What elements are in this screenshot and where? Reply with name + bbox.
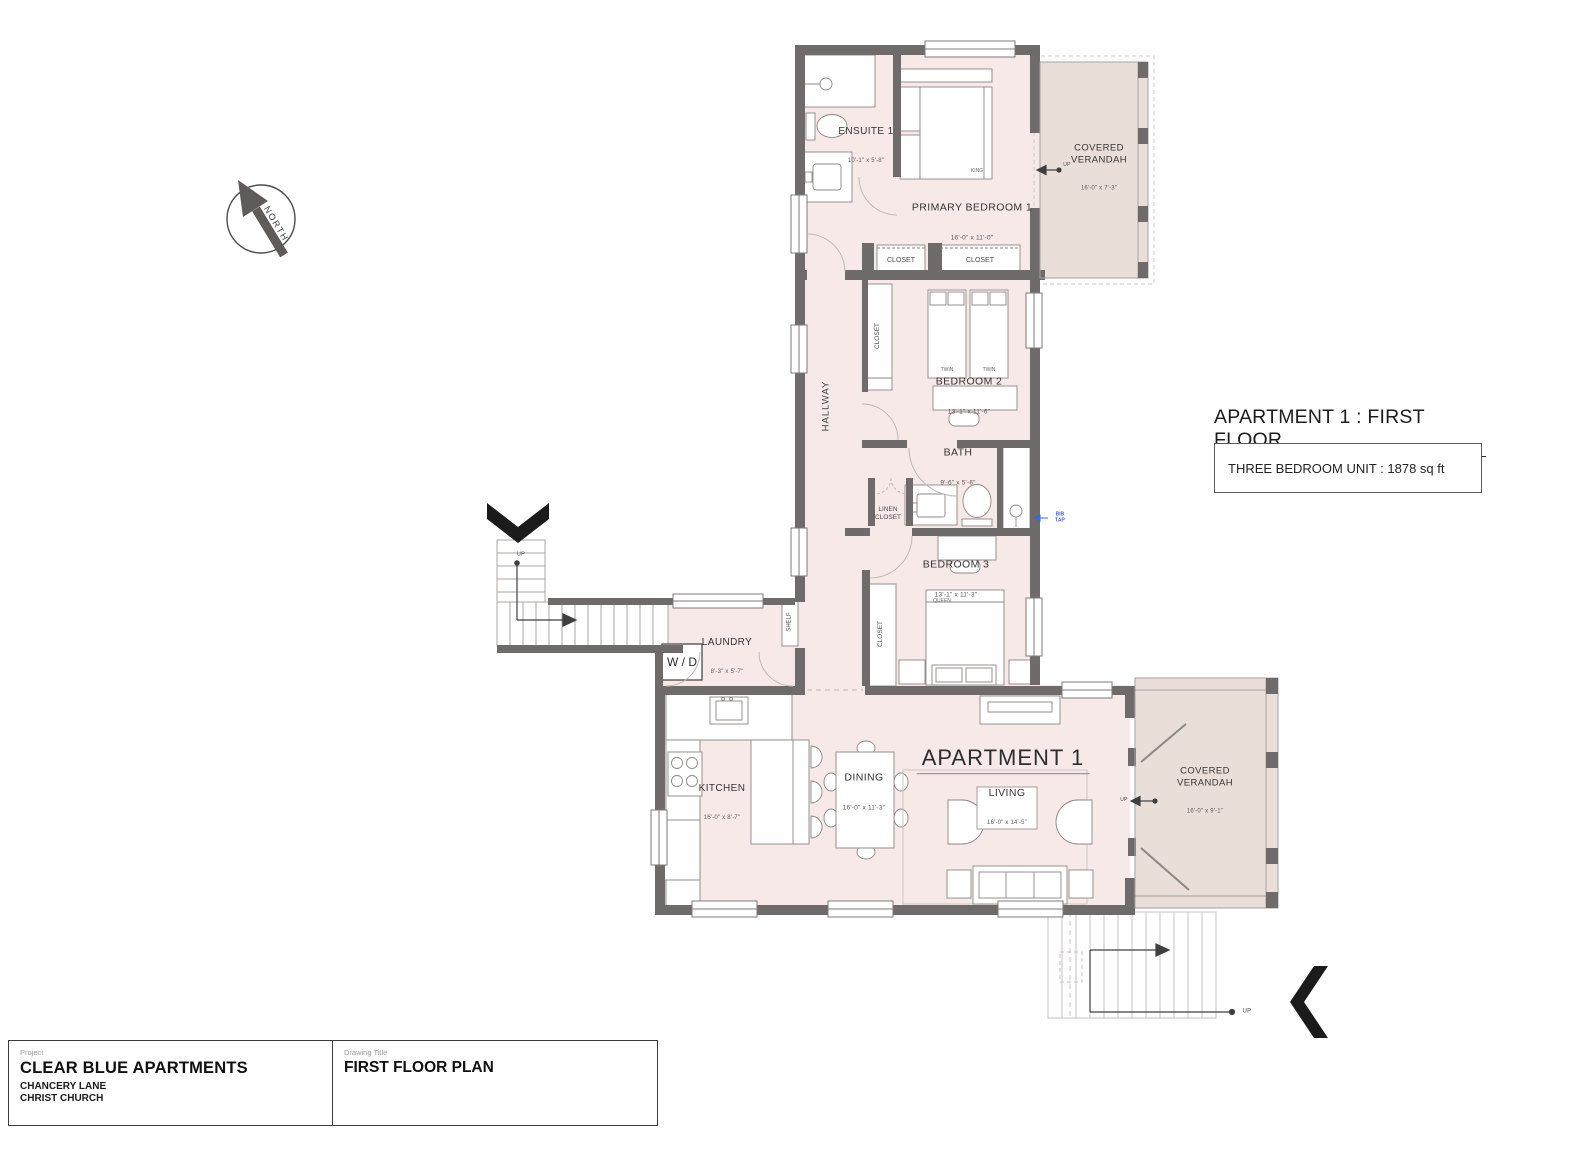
project-address-line1: CHANCERY LANE bbox=[20, 1081, 321, 1092]
project-address-line2: CHRIST CHURCH bbox=[20, 1093, 321, 1104]
drawing-title-label: Drawing Title bbox=[344, 1048, 494, 1057]
room-dims: 9'-6" x 5'-6" bbox=[940, 479, 975, 487]
room-label-linen-closet: LINEN CLOSET bbox=[875, 506, 901, 522]
washer-dryer-label: W / D bbox=[667, 655, 697, 669]
room-dims: 16'-0" x 14'-5" bbox=[987, 820, 1027, 827]
room-dims: 16'-0" x 8'-7" bbox=[699, 816, 746, 823]
room-name: PRIMARY BEDROOM 1 bbox=[912, 202, 1032, 215]
room-label-dining: DINING 16'-0" x 11'-3" bbox=[843, 753, 886, 832]
room-label-verandah-top: COVERED VERANDAH 16'-0" x 7'-3" bbox=[1071, 124, 1127, 213]
stair-bottom-right bbox=[1048, 912, 1216, 1018]
bed-size-label-king: KING bbox=[971, 168, 983, 174]
floor-plan-drawing bbox=[0, 0, 1594, 1164]
room-label-kitchen: KITCHEN 16'-0" x 8'-7" bbox=[699, 764, 746, 842]
kitchen-island bbox=[751, 740, 809, 844]
bed-size-label-twin-2: TWIN bbox=[983, 367, 996, 373]
bed-size-label-queen: QUEEN bbox=[933, 598, 951, 604]
room-name: COVERED VERANDAH bbox=[1177, 766, 1233, 789]
room-label-ensuite: ENSUITE 1 10'-1" x 5'-8" bbox=[838, 107, 893, 185]
chevron-down-icon bbox=[487, 503, 549, 543]
room-name: LIVING bbox=[987, 787, 1027, 800]
bar-stools bbox=[811, 746, 822, 838]
room-dims: 10'-1" x 5'-8" bbox=[838, 159, 893, 166]
sink-icon bbox=[710, 697, 748, 724]
title-block-project-cell: Project CLEAR BLUE APARTMENTS CHANCERY L… bbox=[9, 1041, 333, 1125]
drawing-title: FIRST FLOOR PLAN bbox=[344, 1059, 494, 1077]
room-dims: 16'-0" x 11'-0" bbox=[912, 234, 1032, 242]
bath-shower-icon bbox=[1003, 446, 1030, 530]
room-label-closet-2: CLOSET bbox=[966, 257, 994, 265]
room-dims: 16'-0" x 7'-3" bbox=[1071, 186, 1127, 193]
shower-icon bbox=[800, 55, 875, 107]
up-label-stair-bottom: UP bbox=[1243, 1008, 1252, 1015]
room-dims: 16'-0" x 11'-3" bbox=[843, 804, 886, 812]
stove-icon bbox=[668, 752, 702, 796]
title-block-drawing-cell: Drawing Title FIRST FLOOR PLAN bbox=[333, 1041, 505, 1125]
room-label-living: LIVING 16'-0" x 14'-5" bbox=[987, 768, 1027, 846]
room-name: BEDROOM 2 bbox=[936, 376, 1003, 389]
north-compass-icon bbox=[227, 180, 295, 255]
room-label-shelf: SHELF bbox=[786, 612, 793, 631]
bib-tap-label: BIB TAP bbox=[1055, 513, 1065, 524]
room-label-verandah-bottom: COVERED VERANDAH 16'-0" x 9'-1" bbox=[1177, 747, 1233, 836]
room-label-bath: BATH 9'-6" x 5'-6" bbox=[940, 428, 975, 507]
room-label-bedroom3: BEDROOM 3 13'-1" x 11'-3" bbox=[923, 540, 990, 619]
bed-size-label-twin-1: TWIN bbox=[941, 367, 954, 373]
room-label-laundry: LAUNDRY 8'-3" x 5'-7" bbox=[702, 618, 752, 696]
apartment-title-label: APARTMENT 1 bbox=[917, 726, 1090, 772]
room-label-primary-bedroom: PRIMARY BEDROOM 1 16'-0" x 11'-0" bbox=[912, 183, 1032, 262]
room-name: ENSUITE 1 bbox=[838, 126, 893, 138]
room-label-closet-bedroom2: CLOSET bbox=[874, 323, 882, 349]
room-label-hallway: HALLWAY bbox=[820, 381, 831, 432]
up-label-verandah-bottom: UP bbox=[1120, 797, 1128, 803]
unit-info-text: THREE BEDROOM UNIT : 1878 sq ft bbox=[1228, 461, 1444, 476]
room-name: DINING bbox=[843, 772, 886, 785]
room-dims: 13'-1" x 11'-6" bbox=[936, 408, 1003, 416]
room-name: LAUNDRY bbox=[702, 637, 752, 649]
up-label-stair-left: UP bbox=[517, 552, 525, 559]
room-dims: 8'-3" x 5'-7" bbox=[702, 670, 752, 677]
floor-plan-page: ENSUITE 1 10'-1" x 5'-8" PRIMARY BEDROOM… bbox=[0, 0, 1594, 1164]
room-label-closet-bedroom3: CLOSET bbox=[877, 621, 885, 647]
tv-console bbox=[980, 696, 1060, 724]
room-dims: 16'-0" x 9'-1" bbox=[1177, 809, 1233, 816]
room-name: BATH bbox=[940, 447, 975, 460]
room-label-closet-1: CLOSET bbox=[887, 257, 915, 265]
up-label-verandah-top: UP bbox=[1063, 162, 1071, 168]
project-name: CLEAR BLUE APARTMENTS bbox=[20, 1059, 321, 1078]
chevron-left-icon bbox=[1290, 966, 1328, 1038]
room-name: COVERED VERANDAH bbox=[1071, 143, 1127, 166]
project-label: Project bbox=[20, 1048, 321, 1057]
room-name: BEDROOM 3 bbox=[923, 559, 990, 572]
sofa bbox=[947, 866, 1093, 904]
room-name: KITCHEN bbox=[699, 783, 746, 795]
unit-info-box: THREE BEDROOM UNIT : 1878 sq ft bbox=[1214, 443, 1482, 493]
title-block: Project CLEAR BLUE APARTMENTS CHANCERY L… bbox=[8, 1040, 658, 1126]
